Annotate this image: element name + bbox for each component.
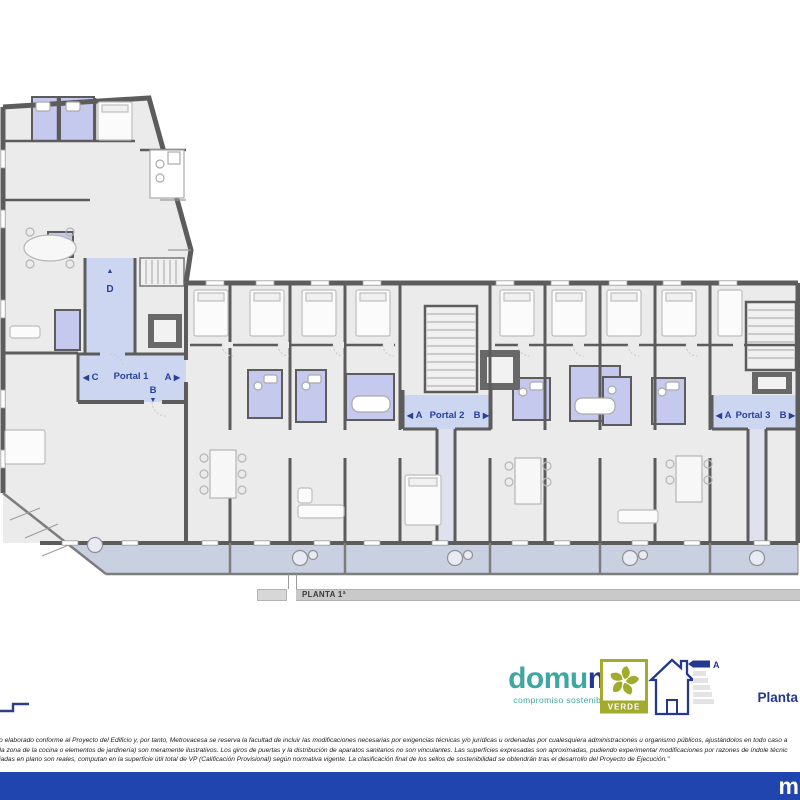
section-tick	[288, 574, 289, 589]
floor-bar: PLANTA 1ª	[296, 589, 800, 601]
floor-bar-label: PLANTA 1ª	[296, 590, 800, 600]
metrovacesa-mark: m	[779, 773, 799, 799]
portal-1-name: Portal 1	[114, 371, 150, 382]
disclaimer-line-3: lejadas en plano son reales, computan en…	[0, 755, 800, 765]
stair-portal-3	[746, 302, 796, 370]
disclaimer-line-2: n la zona de la cocina o elementos de ja…	[0, 746, 800, 756]
domum-word-start: domu	[508, 662, 588, 695]
section-tick	[296, 574, 297, 589]
page-floor-label: Planta	[757, 690, 798, 705]
arrow-left-icon: ◀	[406, 411, 414, 420]
corridor-exit-letter: D	[106, 284, 113, 295]
arrow-right-icon: ▶	[482, 411, 490, 420]
portal-3-label: ◀ A Portal 3 B ▶	[715, 410, 796, 421]
stair-portal-2	[425, 306, 477, 392]
stair-portal-1	[140, 258, 184, 286]
portal-1-exit-right: A	[165, 372, 172, 383]
floorplan: ◀ C Portal 1 A ▶ B ▼ ◀ A Portal 2 B ▶ ◀ …	[0, 90, 800, 585]
elevator-portal-2	[480, 350, 520, 390]
portal-3-exit-right: B	[780, 410, 787, 421]
arrow-left-icon: ◀	[82, 373, 90, 382]
verde-badge: VERDE	[600, 659, 648, 714]
verde-label: VERDE	[608, 703, 641, 712]
kitchen	[150, 150, 184, 198]
house-icon	[651, 660, 693, 714]
elevator-portal-1	[148, 314, 182, 348]
portal-2-name: Portal 2	[430, 410, 465, 421]
energy-efficiency-icon: A	[648, 652, 724, 718]
portal-2-exit-right: B	[474, 410, 481, 421]
portal-1-exit-left: C	[92, 372, 99, 383]
arrow-left-icon: ◀	[715, 411, 723, 420]
energy-bars: A	[688, 660, 720, 704]
footer-brand-bar: m	[0, 772, 800, 800]
portal-3-name: Portal 3	[736, 410, 771, 421]
arrow-right-icon: ▶	[788, 411, 796, 420]
arrow-down-icon: ▼	[150, 397, 157, 404]
disclaimer-line-1: ido elaborado conforme al Proyecto del E…	[0, 736, 800, 746]
floor-bar-fragment	[257, 589, 287, 601]
portal-2-exit-left: A	[416, 410, 423, 421]
arrow-up-icon: ▲	[107, 268, 114, 275]
house-icon-fragment	[0, 700, 30, 714]
portal-2-label: ◀ A Portal 2 B ▶	[406, 410, 490, 421]
portal-1-exit-bottom: B	[150, 385, 157, 396]
elevator-portal-3	[752, 372, 792, 394]
legal-disclaimer: ido elaborado conforme al Proyecto del E…	[0, 736, 800, 765]
energy-arrow-a	[688, 661, 710, 668]
energy-letter: A	[713, 660, 720, 670]
arrow-right-icon: ▶	[173, 373, 181, 382]
portal-3-exit-left: A	[725, 410, 732, 421]
passage-portal-3	[748, 429, 766, 543]
